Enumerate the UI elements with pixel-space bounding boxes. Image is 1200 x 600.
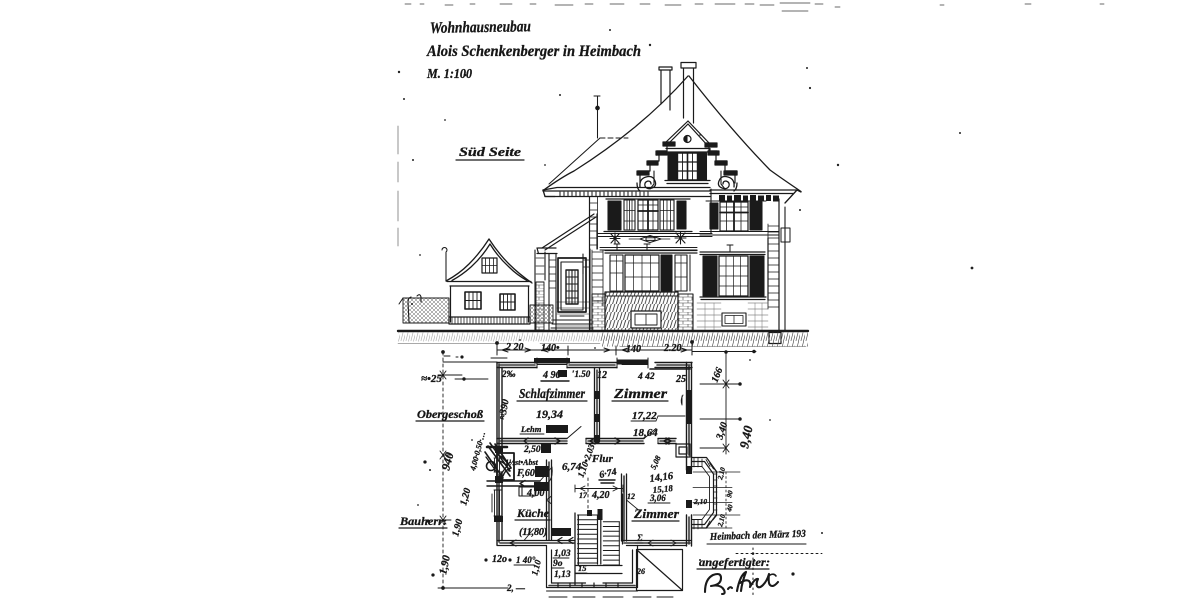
svg-text:3,06: 3,06: [649, 493, 666, 503]
svg-text:≈390: ≈390: [497, 398, 511, 420]
svg-text:1,20: 1,20: [458, 487, 473, 507]
svg-text:2,50: 2,50: [523, 445, 541, 455]
svg-text:6·74: 6·74: [598, 467, 617, 481]
svg-text:Süd Seite: Süd Seite: [459, 144, 521, 159]
svg-text:4,20: 4,20: [591, 490, 610, 501]
svg-text:Ʃ: Ʃ: [636, 533, 643, 543]
svg-text:Zimmer: Zimmer: [613, 386, 668, 401]
svg-text:2,10: 2,10: [716, 513, 727, 528]
svg-text:Schlafzimmer: Schlafzimmer: [519, 387, 585, 402]
svg-text:4 42: 4 42: [637, 372, 655, 382]
svg-text:F,60: F,60: [516, 468, 535, 479]
svg-text:Küche: Küche: [516, 506, 550, 520]
svg-text:3,40: 3,40: [714, 421, 730, 442]
svg-text:1,13: 1,13: [554, 570, 571, 580]
svg-text:M. 1:100: M. 1:100: [426, 66, 472, 81]
svg-text:2 20: 2 20: [505, 342, 524, 353]
svg-text:140•: 140•: [541, 343, 560, 354]
svg-text:Bauherr:: Bauherr:: [399, 514, 447, 528]
svg-text:1,90: 1,90: [437, 554, 453, 576]
svg-text:5,08: 5,08: [649, 454, 663, 470]
svg-text:1½st•Abst: 1½st•Abst: [505, 458, 539, 467]
svg-text:1,03: 1,03: [554, 549, 571, 559]
svg-text:(11,80): (11,80): [519, 527, 547, 538]
svg-text:2.20: 2.20: [663, 343, 682, 354]
svg-text:Zimmer: Zimmer: [633, 506, 680, 521]
svg-text:17,22: 17,22: [632, 410, 657, 422]
svg-text:angefertigter:: angefertigter:: [699, 555, 770, 569]
svg-text:9o: 9o: [553, 559, 563, 569]
svg-text:Alois Schenkenberger in Heimba: Alois Schenkenberger in Heimbach: [426, 43, 641, 60]
svg-text:Heimbach den März 193: Heimbach den März 193: [709, 529, 806, 543]
svg-text:940: 940: [438, 451, 456, 472]
svg-text:1,90: 1,90: [450, 518, 465, 538]
svg-text:25: 25: [675, 374, 686, 385]
svg-text:12o: 12o: [492, 554, 507, 565]
svg-text:19,34: 19,34: [536, 407, 563, 421]
svg-text:Obergeschoß: Obergeschoß: [417, 407, 483, 421]
svg-text:2‰: 2‰: [501, 369, 516, 379]
svg-text:≈•25: ≈•25: [421, 373, 442, 385]
svg-text:2,10: 2,10: [716, 466, 727, 481]
svg-text:Wohnhausneubau: Wohnhausneubau: [430, 18, 531, 37]
svg-text:2, —: 2, —: [506, 583, 525, 593]
svg-text:166: 166: [710, 366, 726, 384]
svg-text:26: 26: [636, 567, 645, 576]
svg-text:15: 15: [578, 563, 587, 573]
svg-text:Lehm: Lehm: [520, 424, 542, 434]
svg-text:2,10: 2,10: [693, 497, 707, 506]
svg-text:12: 12: [627, 492, 635, 501]
svg-text:12: 12: [597, 370, 607, 381]
svg-text:140: 140: [626, 344, 641, 355]
svg-text:Flur: Flur: [591, 453, 614, 465]
svg-text:40: 40: [725, 503, 735, 513]
svg-text:4 96: 4 96: [542, 370, 561, 381]
svg-text:90: 90: [725, 489, 735, 498]
svg-text:′1.50: ′1.50: [572, 369, 591, 379]
svg-text:17: 17: [579, 491, 588, 500]
svg-text:9,40: 9,40: [736, 424, 756, 450]
